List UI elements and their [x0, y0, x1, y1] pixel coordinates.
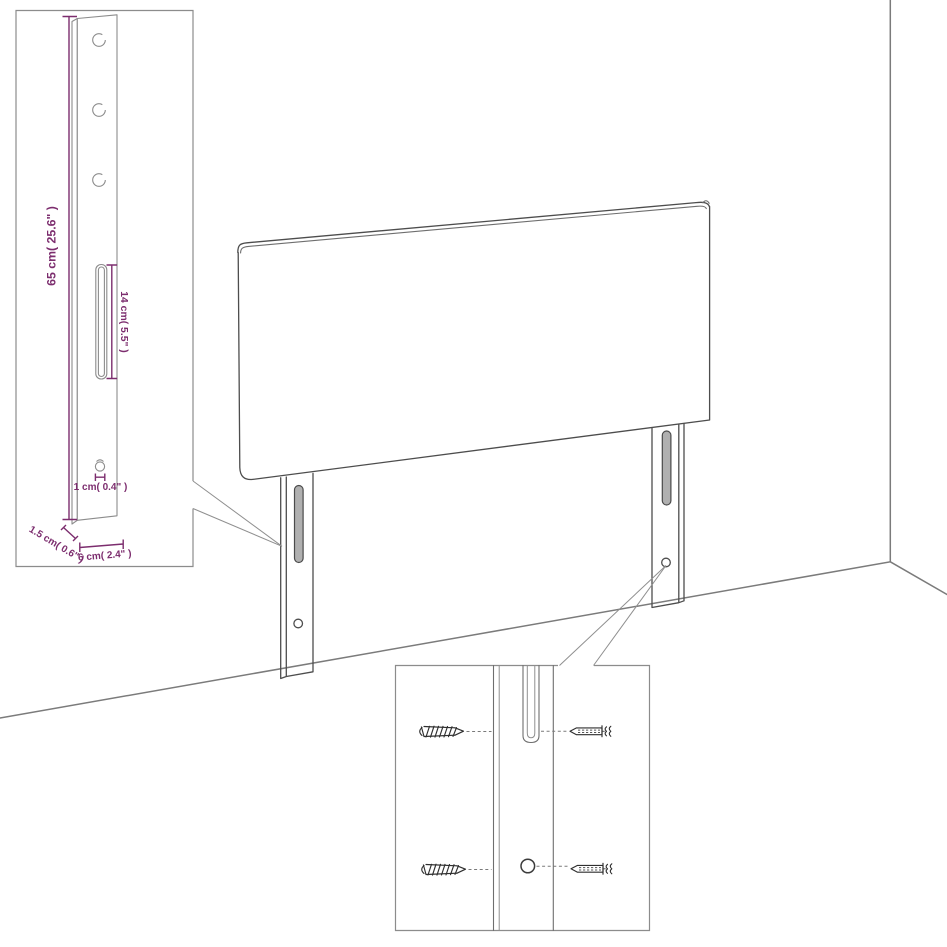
headboard-top-piping-outer — [238, 202, 710, 252]
dim-65cm-label: 65 cm( 25.6" ) — [45, 206, 59, 286]
wall-floor-line-right — [890, 562, 947, 595]
assembly-diagram: 65 cm( 25.6" ) 14 cm( 5.5" ) 1 cm( 0.4" … — [0, 0, 947, 947]
mounting-detail-inset — [396, 666, 650, 931]
assembly-diagram-page: 65 cm( 25.6" ) 14 cm( 5.5" ) 1 cm( 0.4" … — [0, 0, 947, 947]
headboard-panel-outline — [238, 207, 709, 480]
left-leg-hole — [294, 619, 303, 628]
wall-plug-icon — [571, 863, 612, 874]
dim-14cm-label: 14 cm( 5.5" ) — [118, 291, 129, 353]
callout-line — [560, 566, 667, 666]
headboard-left-leg — [281, 473, 313, 678]
headboard-top-piping-inner — [241, 206, 707, 253]
bracket-detail-inset: 65 cm( 25.6" ) 14 cm( 5.5" ) 1 cm( 0.4" … — [16, 11, 193, 567]
wall-plug-icon — [570, 726, 611, 737]
screw-icon — [422, 864, 466, 875]
headboard — [238, 201, 710, 480]
strip-slot-outer — [523, 666, 539, 743]
bracket-callout-lines — [193, 481, 282, 546]
bracket-front-face — [77, 15, 117, 521]
screw-icon — [420, 726, 464, 737]
mounting-callout-lines — [560, 566, 667, 666]
dim-1cm-label: 1 cm( 0.4" ) — [74, 482, 128, 493]
room-walls — [0, 0, 947, 718]
callout-line — [594, 566, 667, 666]
wall-floor-line-left — [0, 562, 890, 718]
headboard-right-leg — [652, 424, 684, 608]
dim-1p5cm-line — [61, 525, 78, 541]
dim-1p5cm-label: 1.5 cm( 0.6" ) — [27, 524, 86, 565]
bracket-side-face — [72, 19, 77, 525]
strip-hole — [521, 859, 535, 873]
strip-slot-inner — [527, 666, 535, 738]
right-leg-slot — [662, 431, 671, 505]
dim-6cm-label: 6 cm( 2.4" ) — [78, 548, 132, 563]
left-leg-slot — [295, 486, 304, 563]
